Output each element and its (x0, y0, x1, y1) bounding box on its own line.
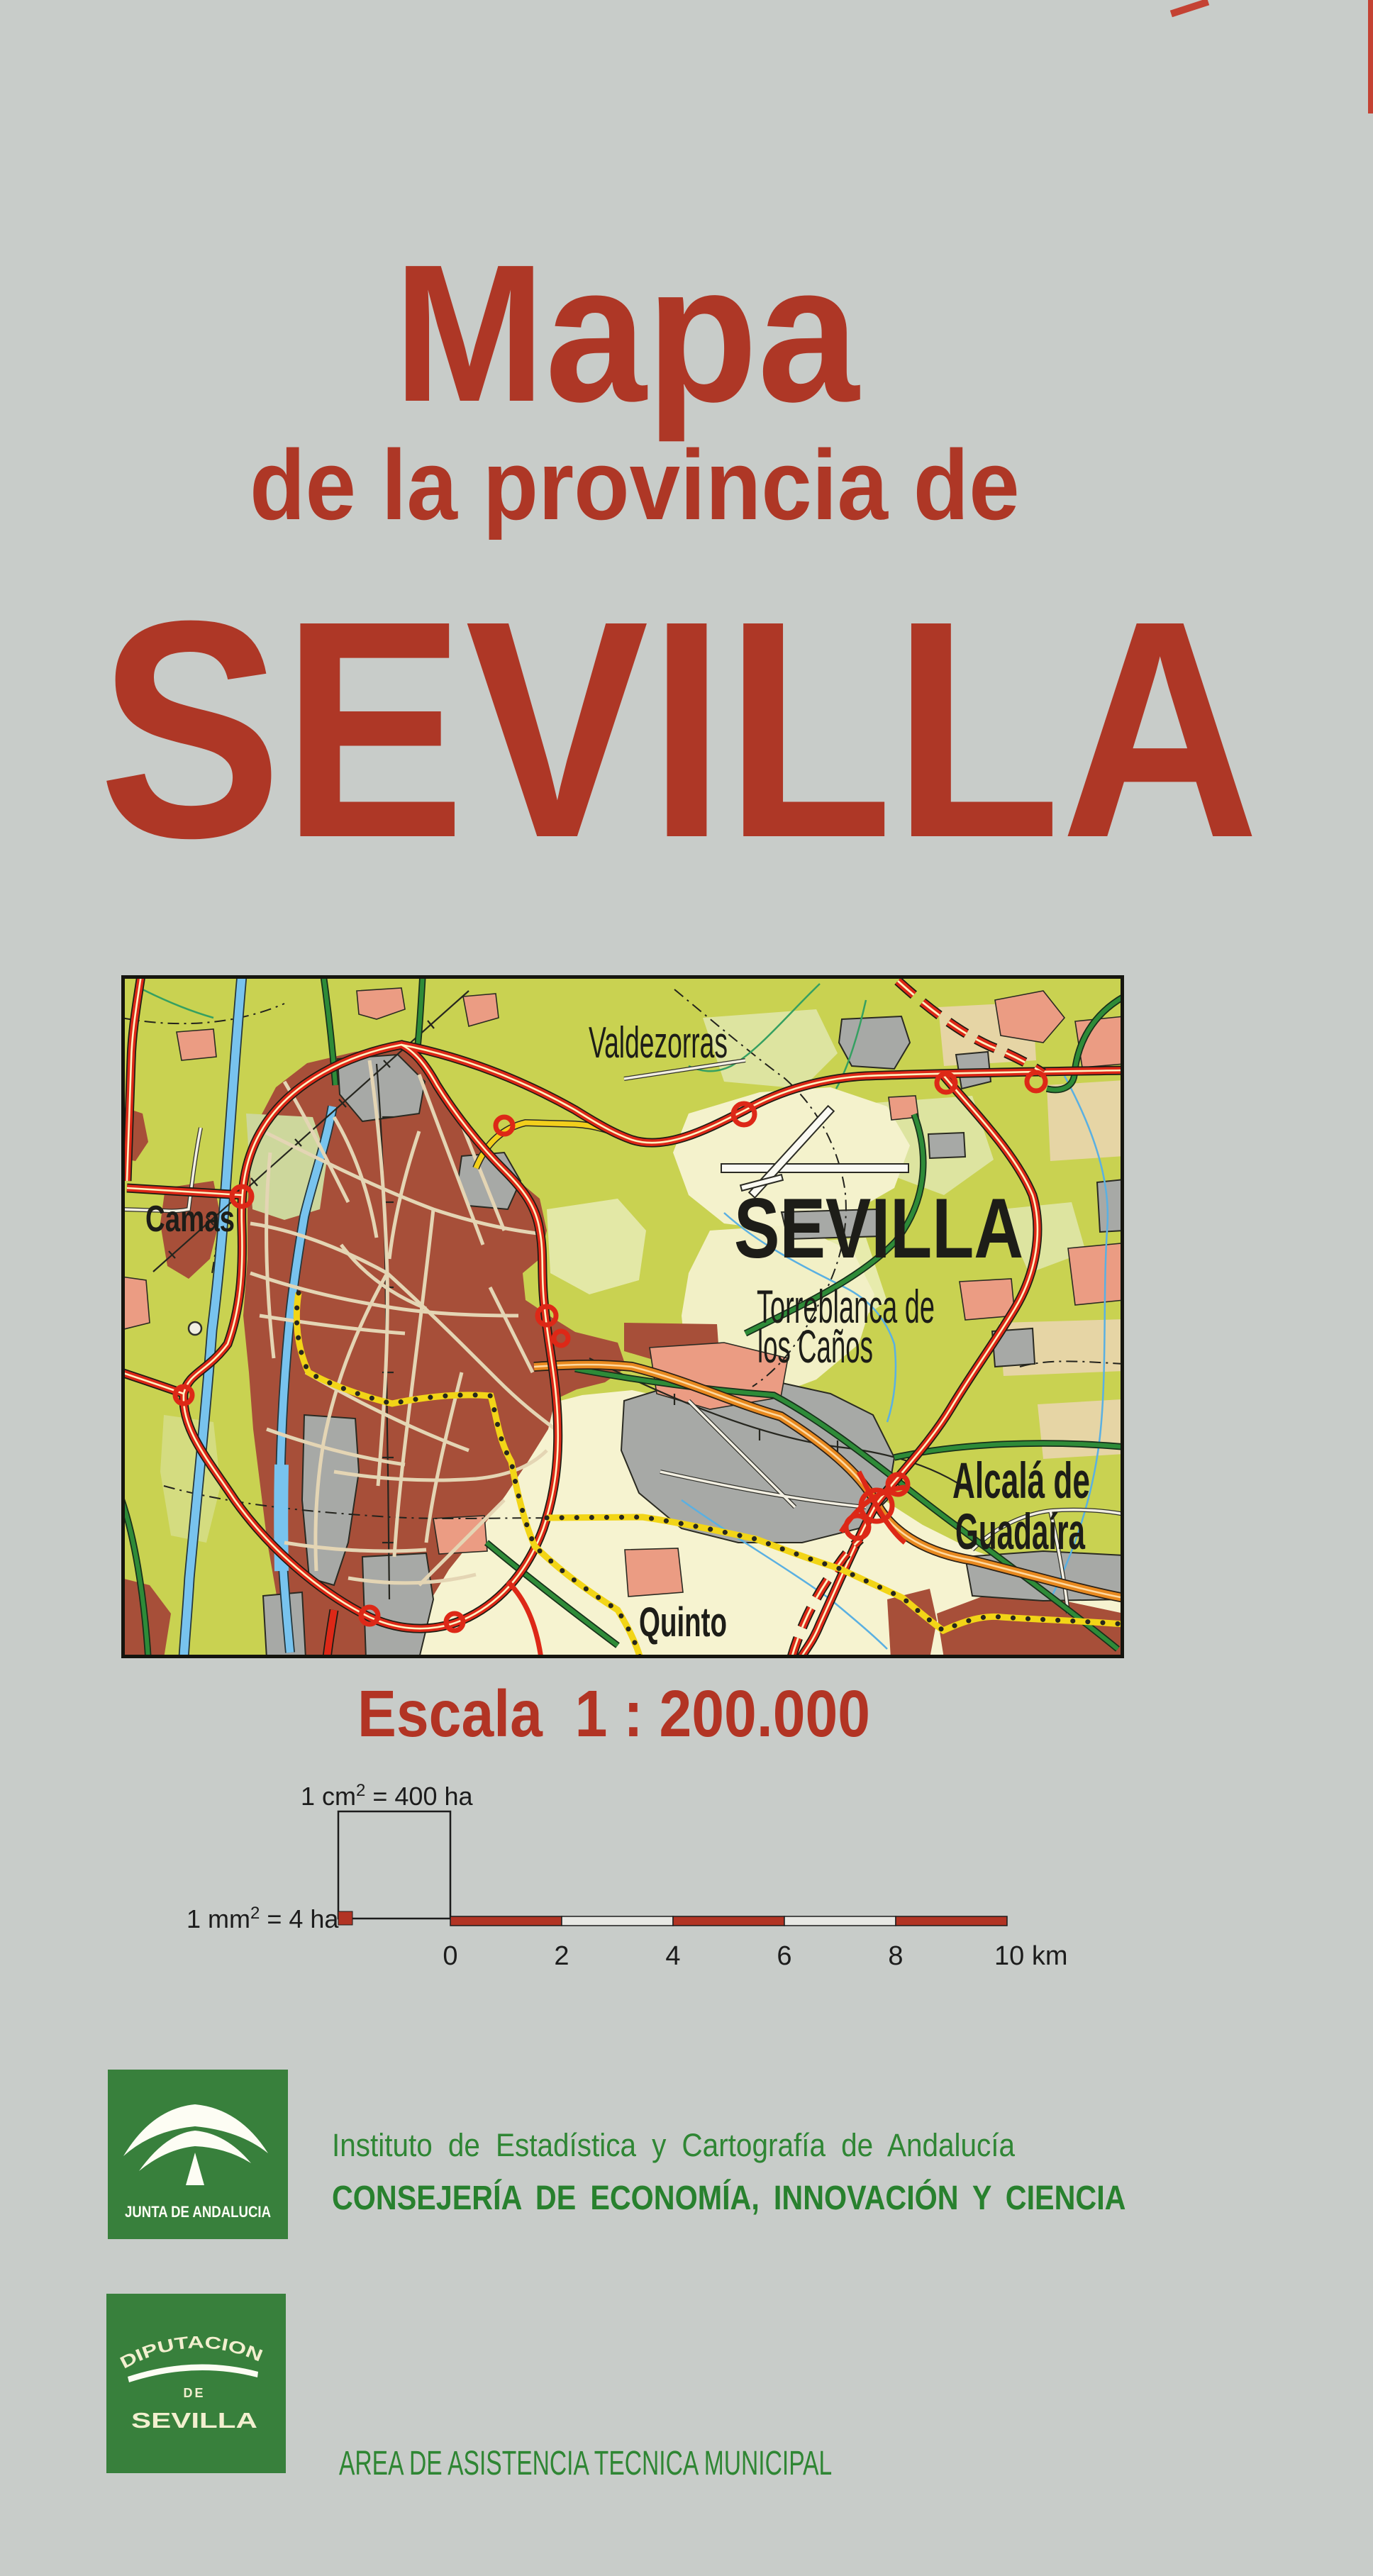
svg-text:6: 6 (777, 1941, 791, 1971)
svg-text:Valdezorras: Valdezorras (589, 1018, 728, 1067)
svg-text:SEVILLA: SEVILLA (131, 2408, 257, 2433)
svg-text:Guadaíra: Guadaíra (955, 1504, 1085, 1560)
svg-text:1 mm2 = 4 ha: 1 mm2 = 4 ha (187, 1904, 339, 1934)
svg-text:0: 0 (443, 1941, 457, 1971)
svg-text:2: 2 (554, 1941, 569, 1971)
svg-text:Quinto: Quinto (639, 1599, 727, 1645)
svg-text:Alcalá de: Alcalá de (952, 1453, 1090, 1509)
svg-text:JUNTA DE ANDALUCIA: JUNTA DE ANDALUCIA (125, 2203, 271, 2221)
svg-text:SEVILLA: SEVILLA (734, 1181, 1023, 1276)
svg-text:Camas: Camas (145, 1199, 235, 1240)
svg-text:4: 4 (665, 1941, 680, 1971)
svg-text:los Caños: los Caños (757, 1320, 873, 1372)
svg-text:10 km: 10 km (994, 1941, 1067, 1971)
svg-text:DE: DE (183, 2386, 205, 2400)
svg-text:8: 8 (888, 1941, 903, 1971)
svg-text:1 cm2 = 400 ha: 1 cm2 = 400 ha (301, 1781, 473, 1811)
